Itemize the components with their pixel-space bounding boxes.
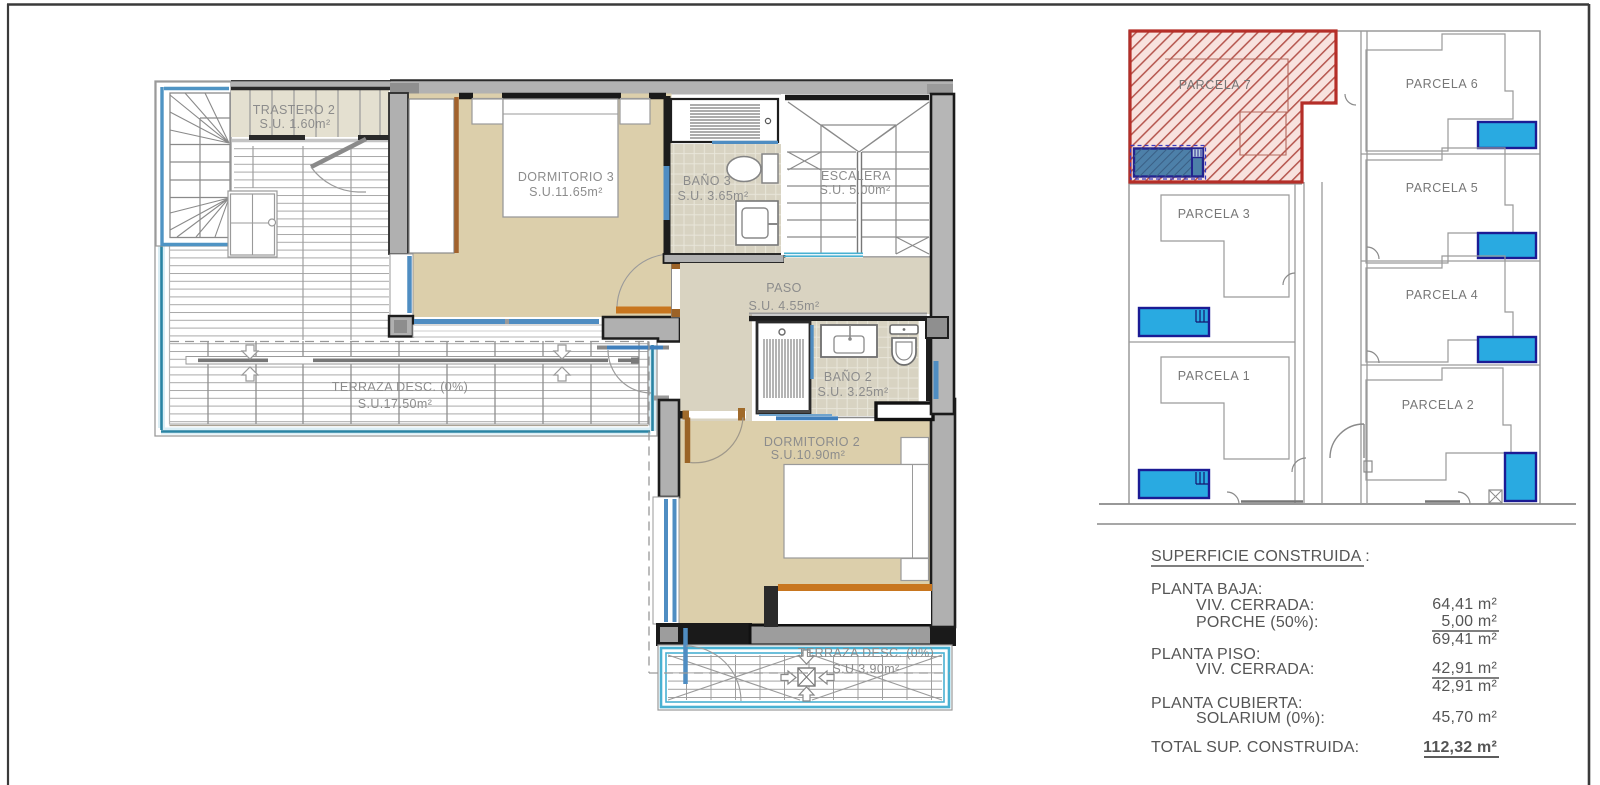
svg-text:PASO: PASO (766, 281, 801, 295)
svg-text:PLANTA BAJA:: PLANTA BAJA: (1151, 581, 1262, 598)
svg-text:S.U.3.90m²: S.U.3.90m² (832, 662, 899, 676)
svg-text:PARCELA 4: PARCELA 4 (1406, 288, 1479, 302)
svg-text:PARCELA 7: PARCELA 7 (1179, 78, 1252, 92)
svg-text:112,32 m²: 112,32 m² (1423, 739, 1497, 756)
svg-text:42,91 m²: 42,91 m² (1432, 678, 1497, 695)
svg-text:S.U. 4.55m²: S.U. 4.55m² (748, 299, 819, 313)
svg-text:S.U. 5.00m²: S.U. 5.00m² (819, 183, 890, 197)
svg-text:PORCHE (50%):: PORCHE (50%): (1196, 614, 1319, 631)
svg-text:S.U.17.50m²: S.U.17.50m² (358, 397, 433, 411)
svg-text:64,41 m²: 64,41 m² (1432, 596, 1497, 613)
svg-text:S.U. 3.25m²: S.U. 3.25m² (817, 385, 888, 399)
svg-text:SUPERFICIE CONSTRUIDA :: SUPERFICIE CONSTRUIDA : (1151, 548, 1370, 565)
svg-text:SOLARIUM (0%):: SOLARIUM (0%): (1196, 710, 1325, 727)
svg-text:PARCELA 3: PARCELA 3 (1178, 207, 1251, 221)
svg-text:PARCELA 1: PARCELA 1 (1178, 369, 1251, 383)
svg-text:VIV. CERRADA:: VIV. CERRADA: (1196, 597, 1315, 614)
svg-text:DORMITORIO 3: DORMITORIO 3 (518, 170, 614, 184)
svg-text:TERRAZA DESC. (0%): TERRAZA DESC. (0%) (332, 380, 468, 394)
svg-text:69,41 m²: 69,41 m² (1432, 631, 1497, 648)
svg-text:TRASTERO 2: TRASTERO 2 (253, 103, 336, 117)
svg-text:PARCELA 5: PARCELA 5 (1406, 181, 1479, 195)
svg-text:PARCELA 2: PARCELA 2 (1402, 398, 1475, 412)
svg-text:DORMITORIO 2: DORMITORIO 2 (764, 435, 860, 449)
svg-text:S.U. 1.60m²: S.U. 1.60m² (259, 117, 330, 131)
svg-text:45,70 m²: 45,70 m² (1432, 709, 1497, 726)
svg-text:PARCELA 6: PARCELA 6 (1406, 77, 1479, 91)
svg-text:VIV. CERRADA:: VIV. CERRADA: (1196, 661, 1315, 678)
svg-text:TERRAZA DESC. (0%): TERRAZA DESC. (0%) (798, 646, 934, 660)
svg-text:BAÑO 2: BAÑO 2 (824, 370, 872, 384)
svg-text:S.U.11.65m²: S.U.11.65m² (529, 185, 603, 199)
svg-text:42,91 m²: 42,91 m² (1432, 660, 1497, 677)
svg-text:5,00 m²: 5,00 m² (1441, 613, 1497, 630)
svg-text:S.U.10.90m²: S.U.10.90m² (771, 448, 846, 462)
svg-text:ESCALERA: ESCALERA (821, 169, 891, 183)
svg-text:BAÑO 3: BAÑO 3 (683, 174, 731, 188)
svg-text:TOTAL SUP. CONSTRUIDA:: TOTAL SUP. CONSTRUIDA: (1151, 739, 1359, 756)
svg-text:S.U. 3.65m²: S.U. 3.65m² (677, 189, 748, 203)
